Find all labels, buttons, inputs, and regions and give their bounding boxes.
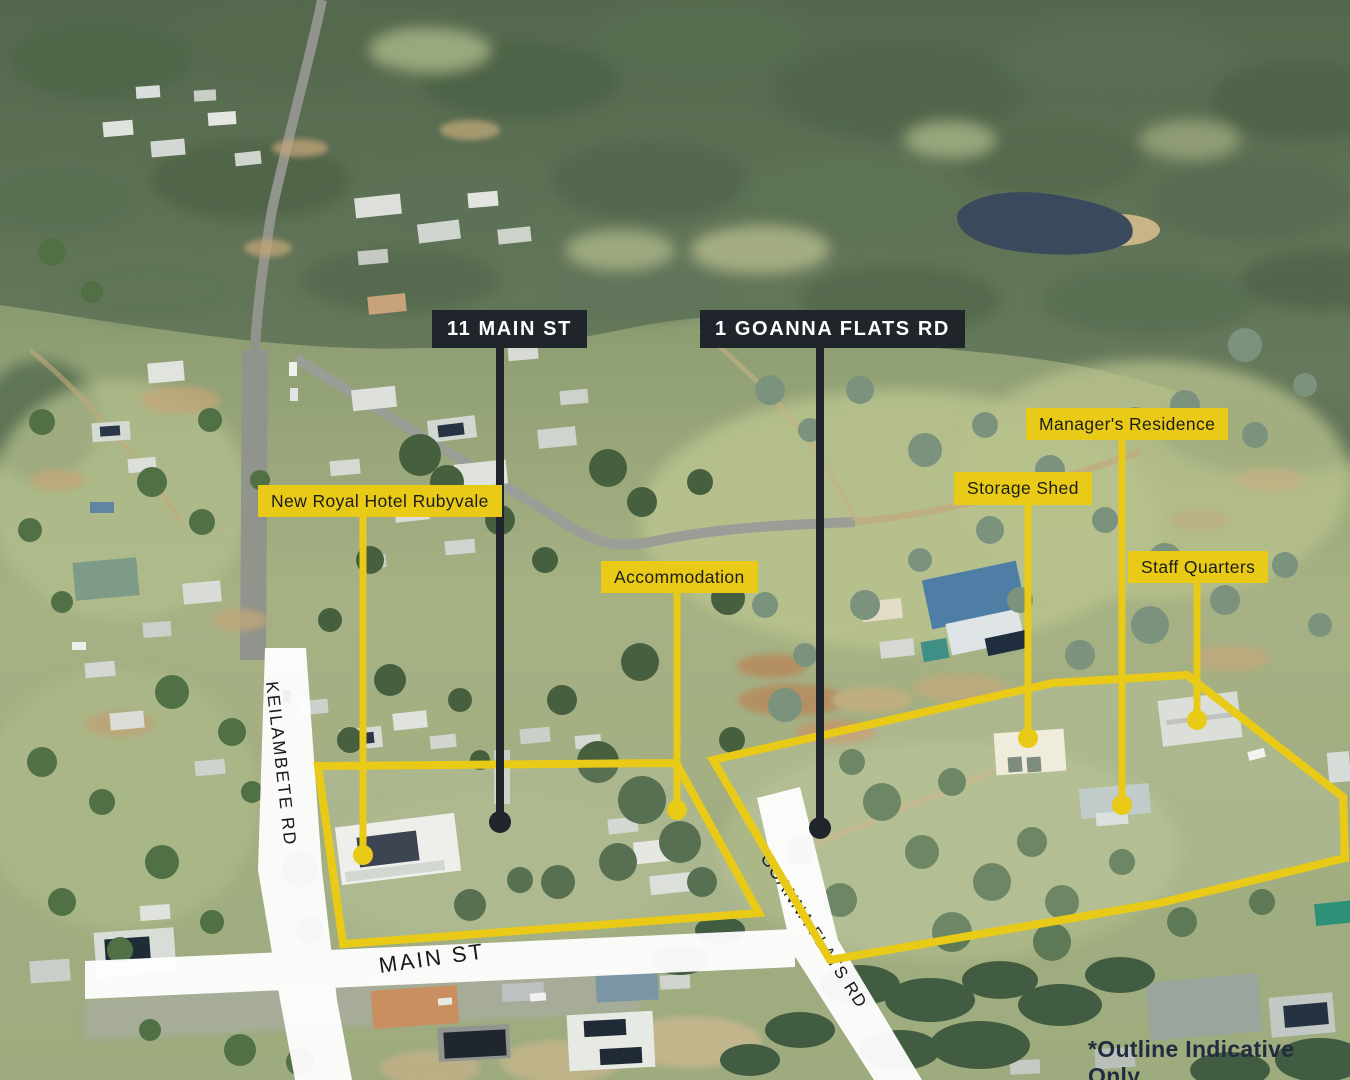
label-new-royal-hotel: New Royal Hotel Rubyvale: [258, 485, 502, 517]
label-storage-shed: Storage Shed: [954, 472, 1092, 505]
label-accommodation: Accommodation: [601, 561, 758, 593]
marker-dot-accommodation: [667, 800, 687, 820]
label-address-11-main-st: 11 MAIN ST: [432, 310, 587, 348]
label-managers-residence: Manager's Residence: [1026, 408, 1228, 440]
label-address-1-goanna-flats-rd: 1 GOANNA FLATS RD: [700, 310, 965, 348]
aerial-property-photo: KEILAMBETE RD MAIN ST GOANNA FLATS RD 11…: [0, 0, 1350, 1080]
aerial-photo-canvas: KEILAMBETE RD MAIN ST GOANNA FLATS RD: [0, 0, 1350, 1080]
marker-dot-hotel: [353, 845, 373, 865]
property-outline-11-main-st: [318, 763, 759, 944]
marker-dot-1-goanna-flats-rd: [809, 817, 831, 839]
marker-dot-storage-shed: [1018, 728, 1038, 748]
disclaimer-text: *Outline Indicative Only: [1088, 1036, 1350, 1080]
marker-dot-managers-residence: [1112, 795, 1132, 815]
marker-dot-11-main-st: [489, 811, 511, 833]
label-staff-quarters: Staff Quarters: [1128, 551, 1268, 583]
marker-dot-staff-quarters: [1187, 710, 1207, 730]
